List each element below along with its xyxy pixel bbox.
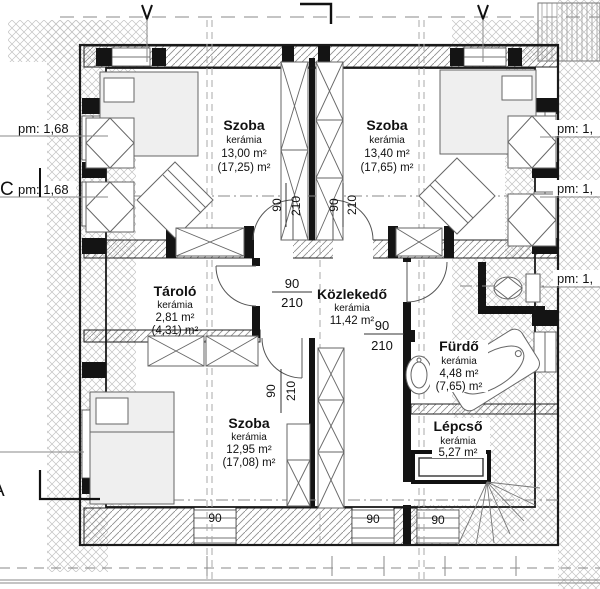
room-label-szoba-s: Szoba kerámia 12,95 m² (17,08) m² (222, 415, 275, 469)
room-name: Közlekedő (317, 286, 387, 302)
room-label-furdo: Fürdő kerámia 4,48 m² (7,65) m² (430, 338, 488, 393)
room-finish: kerámia (231, 432, 267, 443)
dim-door-height: 210 (284, 381, 298, 401)
wardrobe-south-room (287, 424, 310, 506)
room-finish: kerámia (441, 356, 477, 367)
dim-door-height: 210 (371, 338, 393, 353)
room-area-total: (17,08) m² (222, 457, 275, 469)
window-desk-ne-1 (508, 116, 556, 168)
level-mark-right-1: pm: 1, (557, 121, 593, 136)
bath-stair-wall (411, 404, 558, 414)
window-desk-ne-2 (508, 194, 556, 246)
pillow (502, 76, 532, 100)
room-name: Fürdő (439, 338, 479, 354)
room-name: Szoba (228, 415, 269, 431)
section-letter-c: C (0, 179, 14, 200)
room-finish: kerámia (226, 135, 262, 146)
section-letter-a: A (0, 480, 5, 501)
room-area-total: (17,25) m² (217, 162, 270, 174)
dim-door-width: 90 (375, 318, 389, 333)
washbasin (406, 356, 432, 394)
dim-door-height: 210 (289, 196, 303, 216)
dim-door-height: 210 (345, 195, 359, 215)
builtin-cabinet-east (396, 228, 442, 256)
room-name: Lépcső (433, 418, 482, 434)
room-name: Szoba (223, 117, 264, 133)
room-area: 4,48 m² (440, 368, 479, 380)
level-mark-right-3: pm: 1, (557, 271, 593, 286)
view-arrow-icon (142, 5, 152, 19)
level-mark-left-2: pm: 1,68 (18, 182, 69, 197)
room-area-total: (4,31) m² (152, 325, 199, 337)
window-desk-nw-2 (86, 182, 134, 232)
floor-plan-canvas: 90 210 90 210 90 210 90 210 90 210 90 90… (0, 0, 600, 589)
level-mark-left-1: pm: 1,68 (18, 121, 69, 136)
room-finish: kerámia (440, 436, 476, 447)
wardrobe-center-east (316, 62, 343, 240)
dim-door-width: 90 (264, 384, 278, 398)
desk-chair-ne (419, 158, 495, 234)
door-szoba-s (262, 338, 302, 378)
bed-south (90, 392, 174, 504)
room-label-lepcso: Lépcső kerámia 5,27 m² (432, 418, 486, 459)
room-label-szoba-nw: Szoba kerámia 13,00 m² (17,25) m² (217, 117, 270, 174)
room-area: 11,42 m² (330, 315, 375, 327)
room-name: Tároló (154, 283, 197, 299)
room-finish: kerámia (334, 303, 370, 314)
pillow (96, 398, 128, 424)
room-finish: kerámia (369, 135, 405, 146)
dim-door-width: 90 (285, 276, 299, 291)
room-label-szoba-ne: Szoba kerámia 13,40 m² (17,65) m² (360, 117, 413, 174)
pillow (104, 78, 134, 102)
section-mark-top (300, 4, 331, 24)
wc-niche-wall (478, 262, 486, 312)
floor-plan-drawing: 90 210 90 210 90 210 90 210 90 210 90 90… (0, 0, 600, 589)
dim-window-width: 90 (366, 512, 380, 526)
room-area-total: (7,65) m² (436, 381, 483, 393)
room-area: 13,00 m² (221, 148, 267, 160)
room-area: 12,95 m² (226, 444, 272, 456)
room-area-total: (17,65) m² (360, 162, 413, 174)
cabinet-south-room-2 (206, 336, 258, 366)
dim-door-width: 90 (270, 198, 284, 212)
room-finish: kerámia (157, 300, 193, 311)
cabinet-south-room-1 (148, 336, 204, 366)
builtin-cabinet-west (176, 228, 244, 256)
room-area: 13,40 m² (364, 148, 410, 160)
center-wall-north (309, 58, 315, 240)
level-mark-right-2: pm: 1, (557, 181, 593, 196)
dim-window-width: 90 (208, 511, 222, 525)
room-label-tarolo: Tároló kerámia 2,81 m² (4,31) m² (152, 283, 199, 337)
wardrobe-hall (318, 348, 344, 508)
room-area: 5,27 m² (439, 447, 478, 459)
dim-window-width: 90 (431, 513, 445, 527)
room-name: Szoba (366, 117, 407, 133)
dim-door-height: 210 (281, 295, 303, 310)
door-swing-arc (262, 338, 302, 378)
dim-door-width: 90 (327, 198, 341, 212)
room-area: 2,81 m² (156, 312, 195, 324)
window-desk-nw-1 (86, 118, 134, 168)
desk-chair-nw (137, 162, 213, 238)
middle-wall (84, 240, 558, 258)
